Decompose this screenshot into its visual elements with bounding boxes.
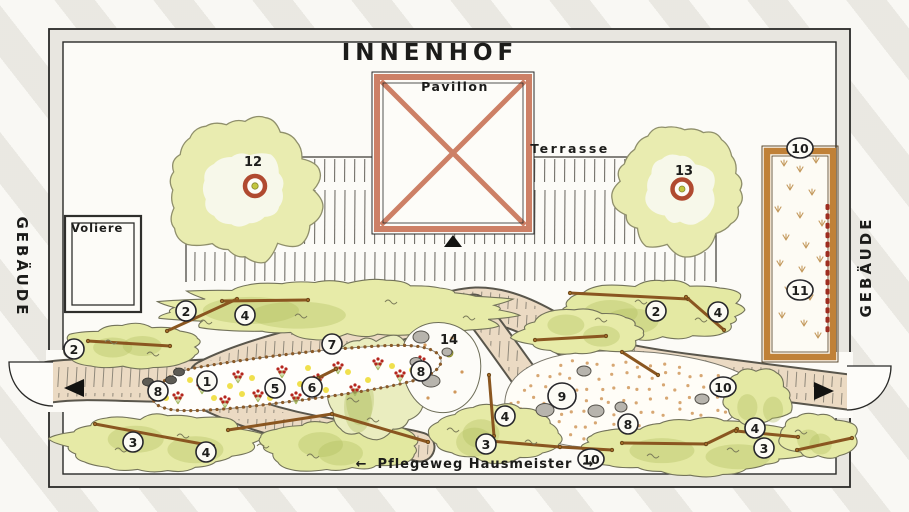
stone-icon <box>615 402 627 412</box>
stone-icon <box>577 366 591 376</box>
svg-text:1: 1 <box>203 374 212 389</box>
marker-5: 5 <box>265 378 285 398</box>
marker-4: 4 <box>235 305 255 325</box>
left-door-icon <box>9 362 53 406</box>
svg-text:5: 5 <box>271 381 280 396</box>
marker-3: 3 <box>123 432 143 452</box>
yellow-flower-dot <box>211 395 217 401</box>
stone-icon <box>413 331 429 343</box>
marker-10: 10 <box>578 449 604 469</box>
marker-1: 1 <box>197 371 217 391</box>
marker-4: 4 <box>745 418 765 438</box>
yellow-flower-dot <box>227 383 233 389</box>
svg-text:14: 14 <box>440 333 458 348</box>
marker-3: 3 <box>754 438 774 458</box>
svg-text:13: 13 <box>675 164 693 179</box>
svg-text:2: 2 <box>70 342 79 357</box>
courtyard-plan: 122233344444567888910101011121314 INNENH… <box>0 0 909 512</box>
marker-2: 2 <box>646 301 666 321</box>
yellow-flower-dot <box>249 375 255 381</box>
stone-icon <box>442 348 452 356</box>
marker-2: 2 <box>176 301 196 321</box>
svg-text:10: 10 <box>714 380 732 395</box>
marker-11: 11 <box>787 280 813 300</box>
stone-icon <box>588 405 604 417</box>
svg-text:3: 3 <box>129 435 138 450</box>
yellow-flower-dot <box>323 387 329 393</box>
yellow-flower-dot <box>389 363 395 369</box>
marker-6: 6 <box>302 377 322 397</box>
svg-text:4: 4 <box>202 445 211 460</box>
aviary <box>65 216 141 312</box>
svg-text:6: 6 <box>308 380 317 395</box>
yellow-flower-dot <box>187 377 193 383</box>
svg-text:8: 8 <box>624 417 633 432</box>
plan-drawing: 122233344444567888910101011121314 <box>0 0 909 512</box>
marker-4: 4 <box>708 302 728 322</box>
yellow-flower-dot <box>365 377 371 383</box>
svg-text:2: 2 <box>182 304 191 319</box>
marker-13: 13 <box>675 164 693 179</box>
dark-stone-icon <box>174 368 185 376</box>
yellow-flower-dot <box>239 391 245 397</box>
svg-text:12: 12 <box>244 155 262 170</box>
svg-text:8: 8 <box>417 364 426 379</box>
svg-text:11: 11 <box>791 283 808 298</box>
svg-text:9: 9 <box>558 389 567 404</box>
marker-10: 10 <box>787 138 813 158</box>
svg-text:4: 4 <box>714 305 723 320</box>
hedge <box>722 369 792 425</box>
yellow-flower-dot <box>345 369 351 375</box>
svg-text:4: 4 <box>241 308 250 323</box>
marker-9: 9 <box>548 383 576 409</box>
marker-14: 14 <box>440 333 458 348</box>
svg-text:3: 3 <box>482 437 491 452</box>
marker-8: 8 <box>148 381 168 401</box>
marker-7: 7 <box>322 334 342 354</box>
dark-stone-icon <box>166 376 177 384</box>
right-door-icon <box>847 366 891 410</box>
marker-10: 10 <box>710 377 736 397</box>
svg-text:2: 2 <box>652 304 661 319</box>
marker-2: 2 <box>64 339 84 359</box>
svg-text:7: 7 <box>328 337 337 352</box>
pavilion <box>372 72 534 234</box>
svg-text:4: 4 <box>501 409 510 424</box>
marker-3: 3 <box>476 434 496 454</box>
marker-8: 8 <box>618 414 638 434</box>
svg-text:10: 10 <box>582 452 600 467</box>
marker-12: 12 <box>244 155 262 170</box>
svg-text:3: 3 <box>760 441 769 456</box>
svg-text:4: 4 <box>751 421 760 436</box>
svg-text:10: 10 <box>791 141 809 156</box>
marker-8: 8 <box>411 361 431 381</box>
marker-4: 4 <box>196 442 216 462</box>
stone-icon <box>695 394 709 404</box>
svg-text:8: 8 <box>154 384 163 399</box>
marker-4: 4 <box>495 406 515 426</box>
yellow-flower-dot <box>305 365 311 371</box>
